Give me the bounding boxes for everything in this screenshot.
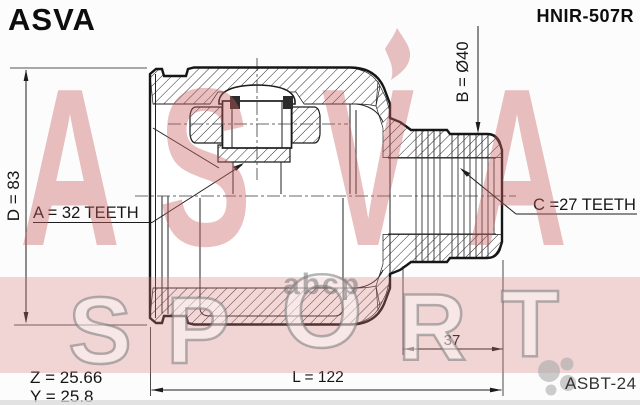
abcp-watermark: abcp	[283, 268, 361, 301]
brand-watermark-letter: A	[467, 42, 568, 293]
cv-joint-technical-drawing: D = 83 A = 32 TEETH B = Ø40 C =27 TEETH …	[0, 0, 640, 405]
sport-watermark-letter: P	[166, 278, 229, 384]
brand-watermark-letter: S	[158, 42, 251, 293]
sport-watermark-letter: R	[398, 275, 467, 381]
roller-clip-right	[283, 96, 293, 109]
ref-code: ASBT-24	[565, 374, 637, 393]
catalog-drawing-page: ASVA HNIR-507R	[0, 0, 640, 405]
brand-watermark-letter: A	[20, 42, 121, 293]
sport-watermark-letter: S	[68, 278, 131, 384]
photo-edge-strip	[0, 400, 640, 405]
